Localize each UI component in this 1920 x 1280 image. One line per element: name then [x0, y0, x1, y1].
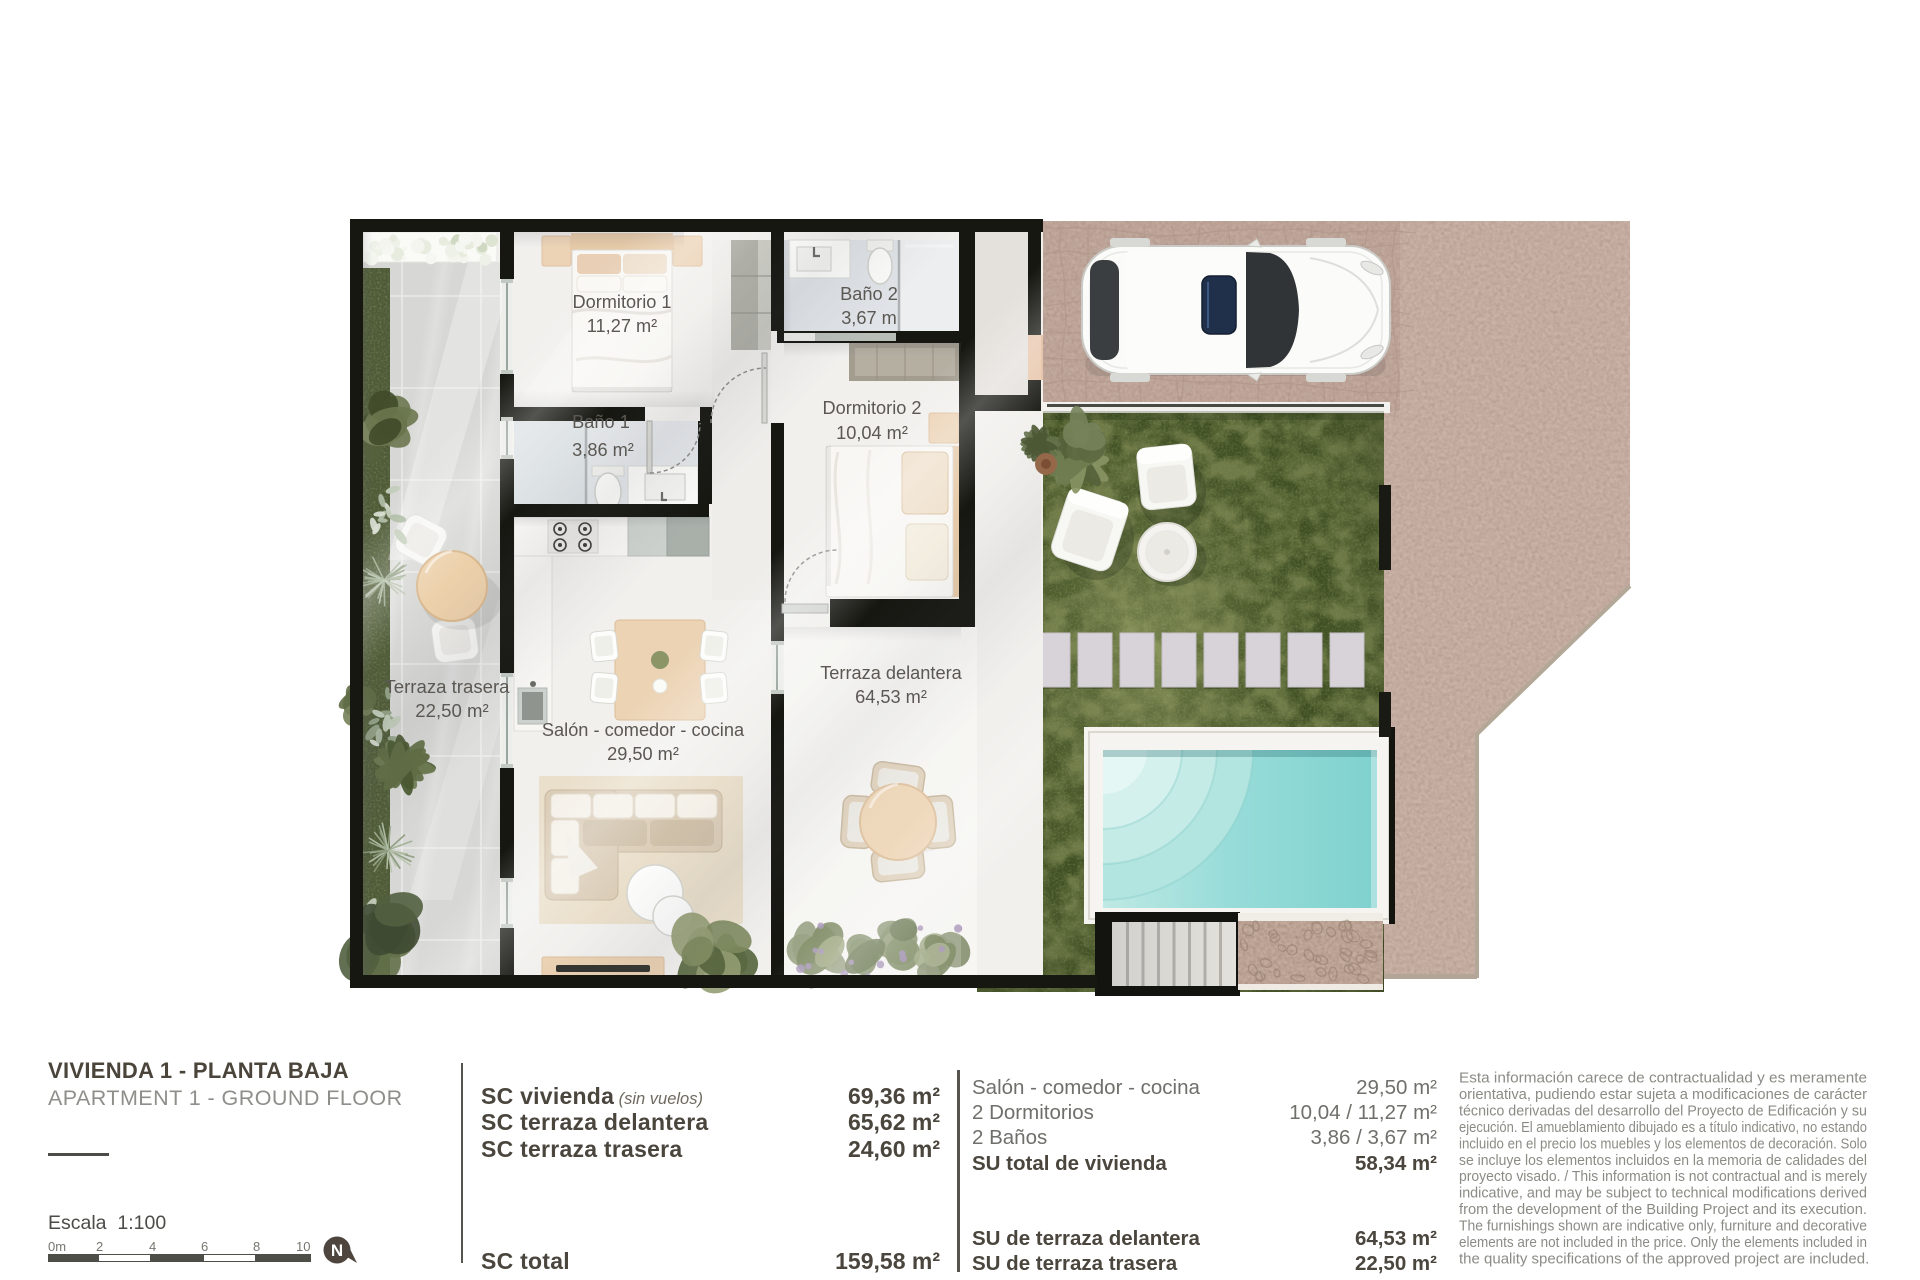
svg-text:técnico derivadas del desarrol: técnico derivadas del desarrollo del Pro…	[1459, 1102, 1867, 1119]
svg-text:incluido en el precio los mueb: incluido en el precio los muebles y los …	[1459, 1135, 1867, 1152]
svg-text:indicative, and may be subject: indicative, and may be subject to techni…	[1459, 1185, 1867, 1202]
svg-text:The furnishings shown are indi: The furnishings shown are indicative onl…	[1459, 1218, 1867, 1235]
svg-text:ejecución. El amueblamiento di: ejecución. El amueblamiento dibujado es …	[1459, 1119, 1867, 1136]
svg-text:se incluye los elementos inclu: se incluye los elementos incluidos en la…	[1459, 1152, 1867, 1169]
svg-text:the quality specifications of: the quality specifications of the approv…	[1459, 1251, 1869, 1268]
svg-text:elements are not included in t: elements are not included in the price. …	[1459, 1234, 1867, 1251]
svg-text:proyecto visado. / This inform: proyecto visado. / This information is n…	[1459, 1168, 1867, 1185]
svg-text:orientativa, pudiendo estar su: orientativa, pudiendo estar sujeta a mod…	[1459, 1086, 1867, 1103]
svg-text:from the development of the Bu: from the development of the Building Pro…	[1459, 1201, 1867, 1218]
svg-text:Esta información carece de con: Esta información carece de contractualid…	[1459, 1070, 1867, 1087]
